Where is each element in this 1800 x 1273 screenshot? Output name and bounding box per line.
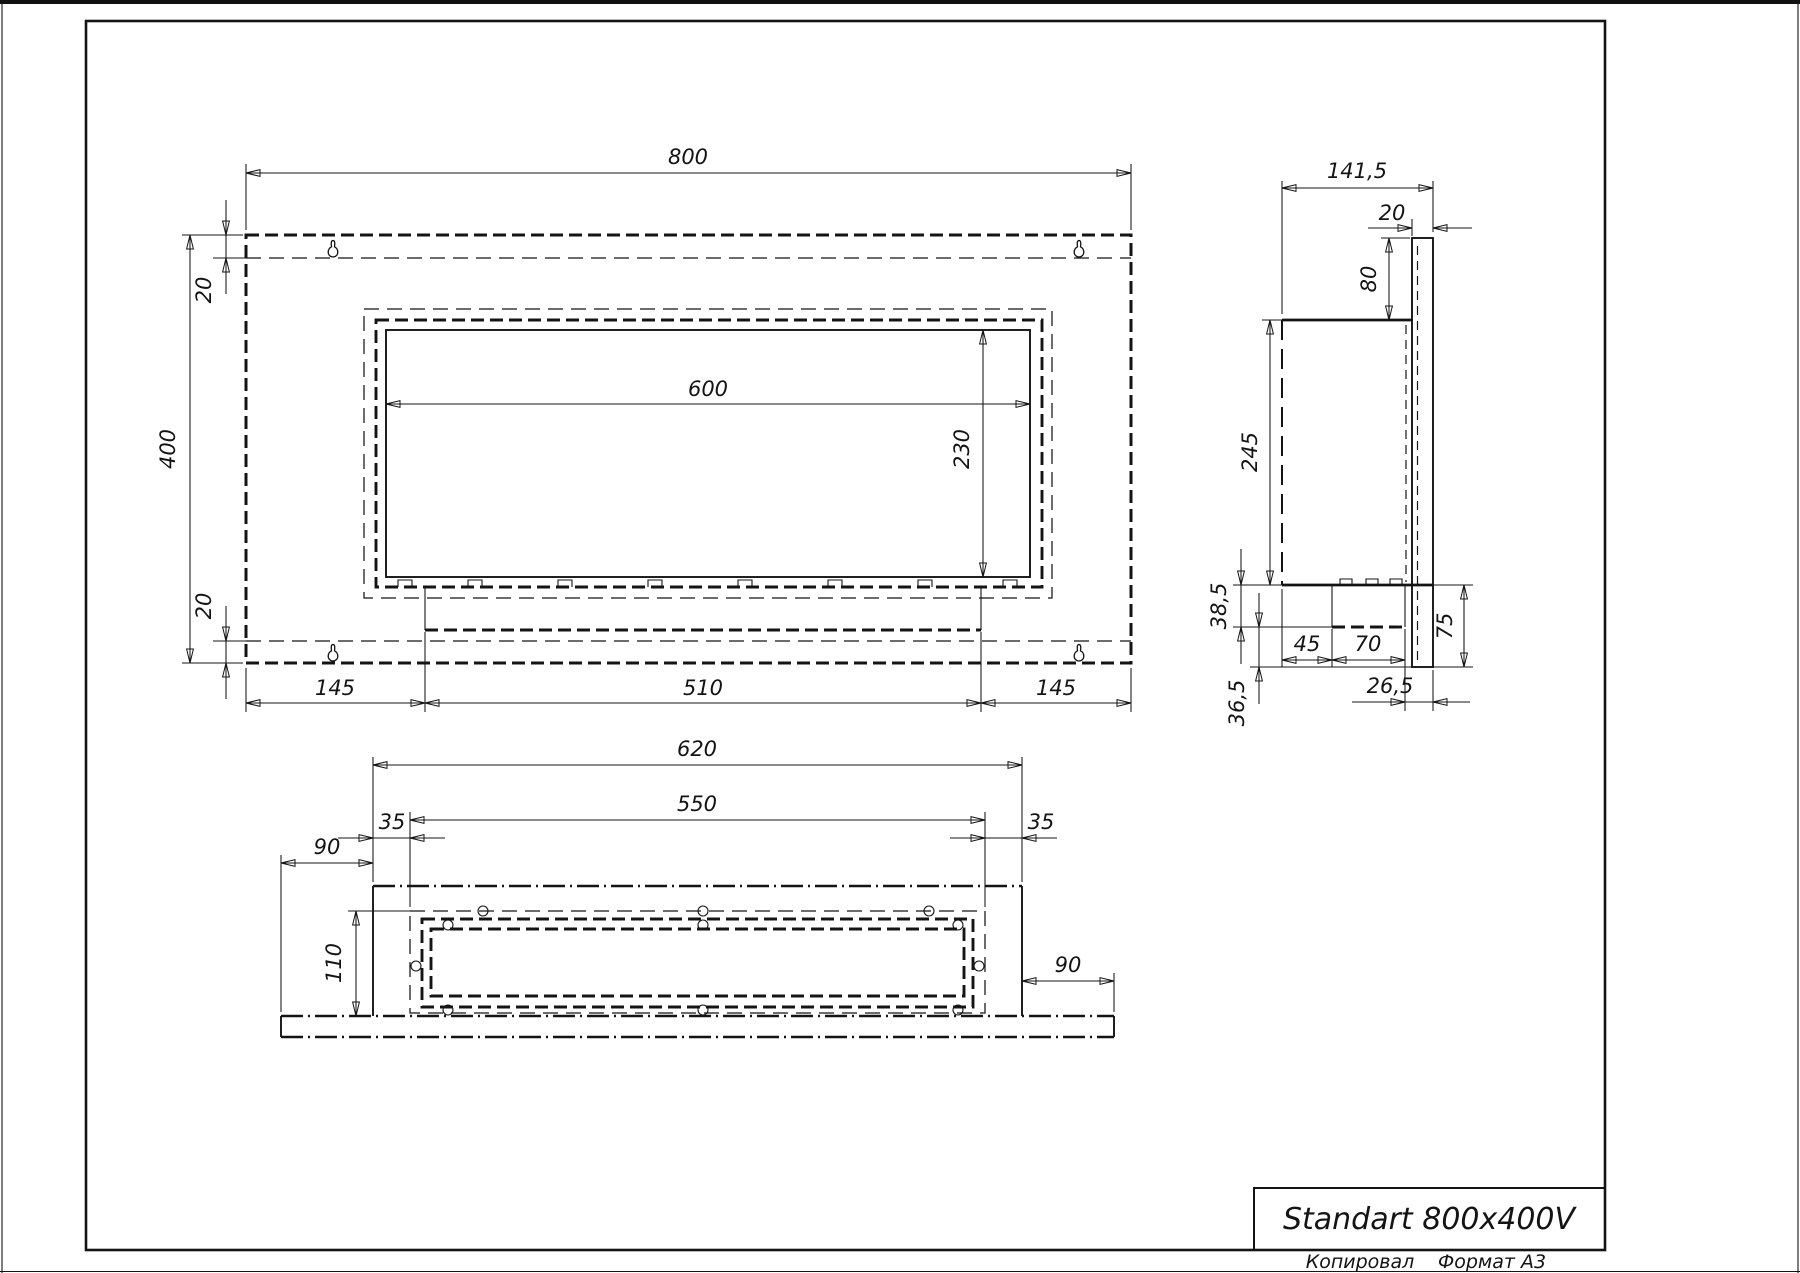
drawing-title: Standart 800x400V — [1283, 1202, 1578, 1237]
bottom-screw-holes — [411, 906, 984, 1015]
front-window-flange-dashed — [376, 320, 1042, 587]
dim-front-bottom-inset: 20 — [192, 593, 216, 620]
dim-front-overall-height: 400 — [156, 429, 180, 469]
keyhole-slot-icon — [328, 645, 338, 662]
format-label: Формат А3 — [1438, 1251, 1546, 1273]
drawing-canvas: 800 400 20 20 600 230 — [0, 0, 1800, 1273]
bottom-view-dimensions: 620 550 35 35 90 110 — [281, 737, 1114, 1016]
dim-side-tray-height: 38,5 — [1207, 583, 1231, 630]
dim-bottom-flange-width: 550 — [677, 792, 717, 816]
dim-side-panel-top-extension: 80 — [1357, 266, 1381, 293]
dim-bottom-panel-overhang-right: 90 — [1055, 953, 1082, 977]
dim-side-tray-depth: 70 — [1355, 632, 1382, 656]
front-view-dimensions: 800 400 20 20 600 230 — [156, 145, 1131, 712]
dim-side-tray-offset-front: 45 — [1294, 632, 1321, 656]
dim-side-bottom-clearance: 36,5 — [1225, 680, 1249, 727]
drawing-sheet: 800 400 20 20 600 230 — [0, 0, 1800, 1273]
dim-front-left-margin: 145 — [315, 676, 355, 700]
title-block: Standart 800x400V Копировал Формат А3 — [1254, 1188, 1605, 1273]
dim-front-overall-width: 800 — [668, 145, 708, 169]
dim-front-window-width: 600 — [688, 377, 728, 401]
front-view: 800 400 20 20 600 230 — [156, 145, 1131, 712]
sheet-border — [0, 0, 1800, 1273]
dim-bottom-body-width: 620 — [677, 737, 717, 761]
sheet-top-edge — [0, 0, 1800, 4]
bottom-view: 620 550 35 35 90 110 — [281, 737, 1114, 1037]
dim-side-panel-bottom-extension: 75 — [1433, 613, 1457, 640]
dim-side-panel-thickness: 20 — [1379, 201, 1406, 225]
bottom-flange-outer-dashed — [422, 919, 973, 1007]
dim-front-window-height: 230 — [950, 429, 974, 469]
front-window-outer-dashed — [364, 309, 1052, 598]
front-window-opening — [386, 330, 1030, 577]
copied-by-label: Копировал — [1306, 1251, 1415, 1273]
dim-front-right-margin: 145 — [1036, 676, 1076, 700]
keyhole-slot-icon — [328, 241, 338, 258]
front-burner-tray — [425, 587, 981, 630]
bottom-front-panel — [281, 1016, 1114, 1037]
bottom-flange-inner-dashed — [431, 929, 964, 996]
dim-front-burner-width: 510 — [683, 676, 723, 700]
side-view: 141,5 20 80 245 38,5 36 — [1207, 159, 1473, 726]
dim-bottom-flange-depth: 110 — [322, 943, 346, 983]
keyhole-slot-icon — [1074, 241, 1084, 258]
front-body-outline — [246, 235, 1131, 663]
dim-side-body-height: 245 — [1238, 432, 1262, 472]
dim-front-top-inset: 20 — [192, 277, 216, 304]
side-back-panel — [1412, 238, 1433, 667]
dim-side-overall-depth: 141,5 — [1327, 159, 1387, 183]
dim-bottom-panel-overhang-left: 90 — [314, 835, 341, 859]
dim-bottom-flange-margin-right: 35 — [1028, 810, 1055, 834]
dim-bottom-flange-margin-left: 35 — [379, 810, 406, 834]
keyhole-slot-icon — [1074, 645, 1084, 662]
dim-side-rear-clearance: 26,5 — [1367, 674, 1414, 698]
bottom-opening-dashed — [410, 911, 985, 1013]
